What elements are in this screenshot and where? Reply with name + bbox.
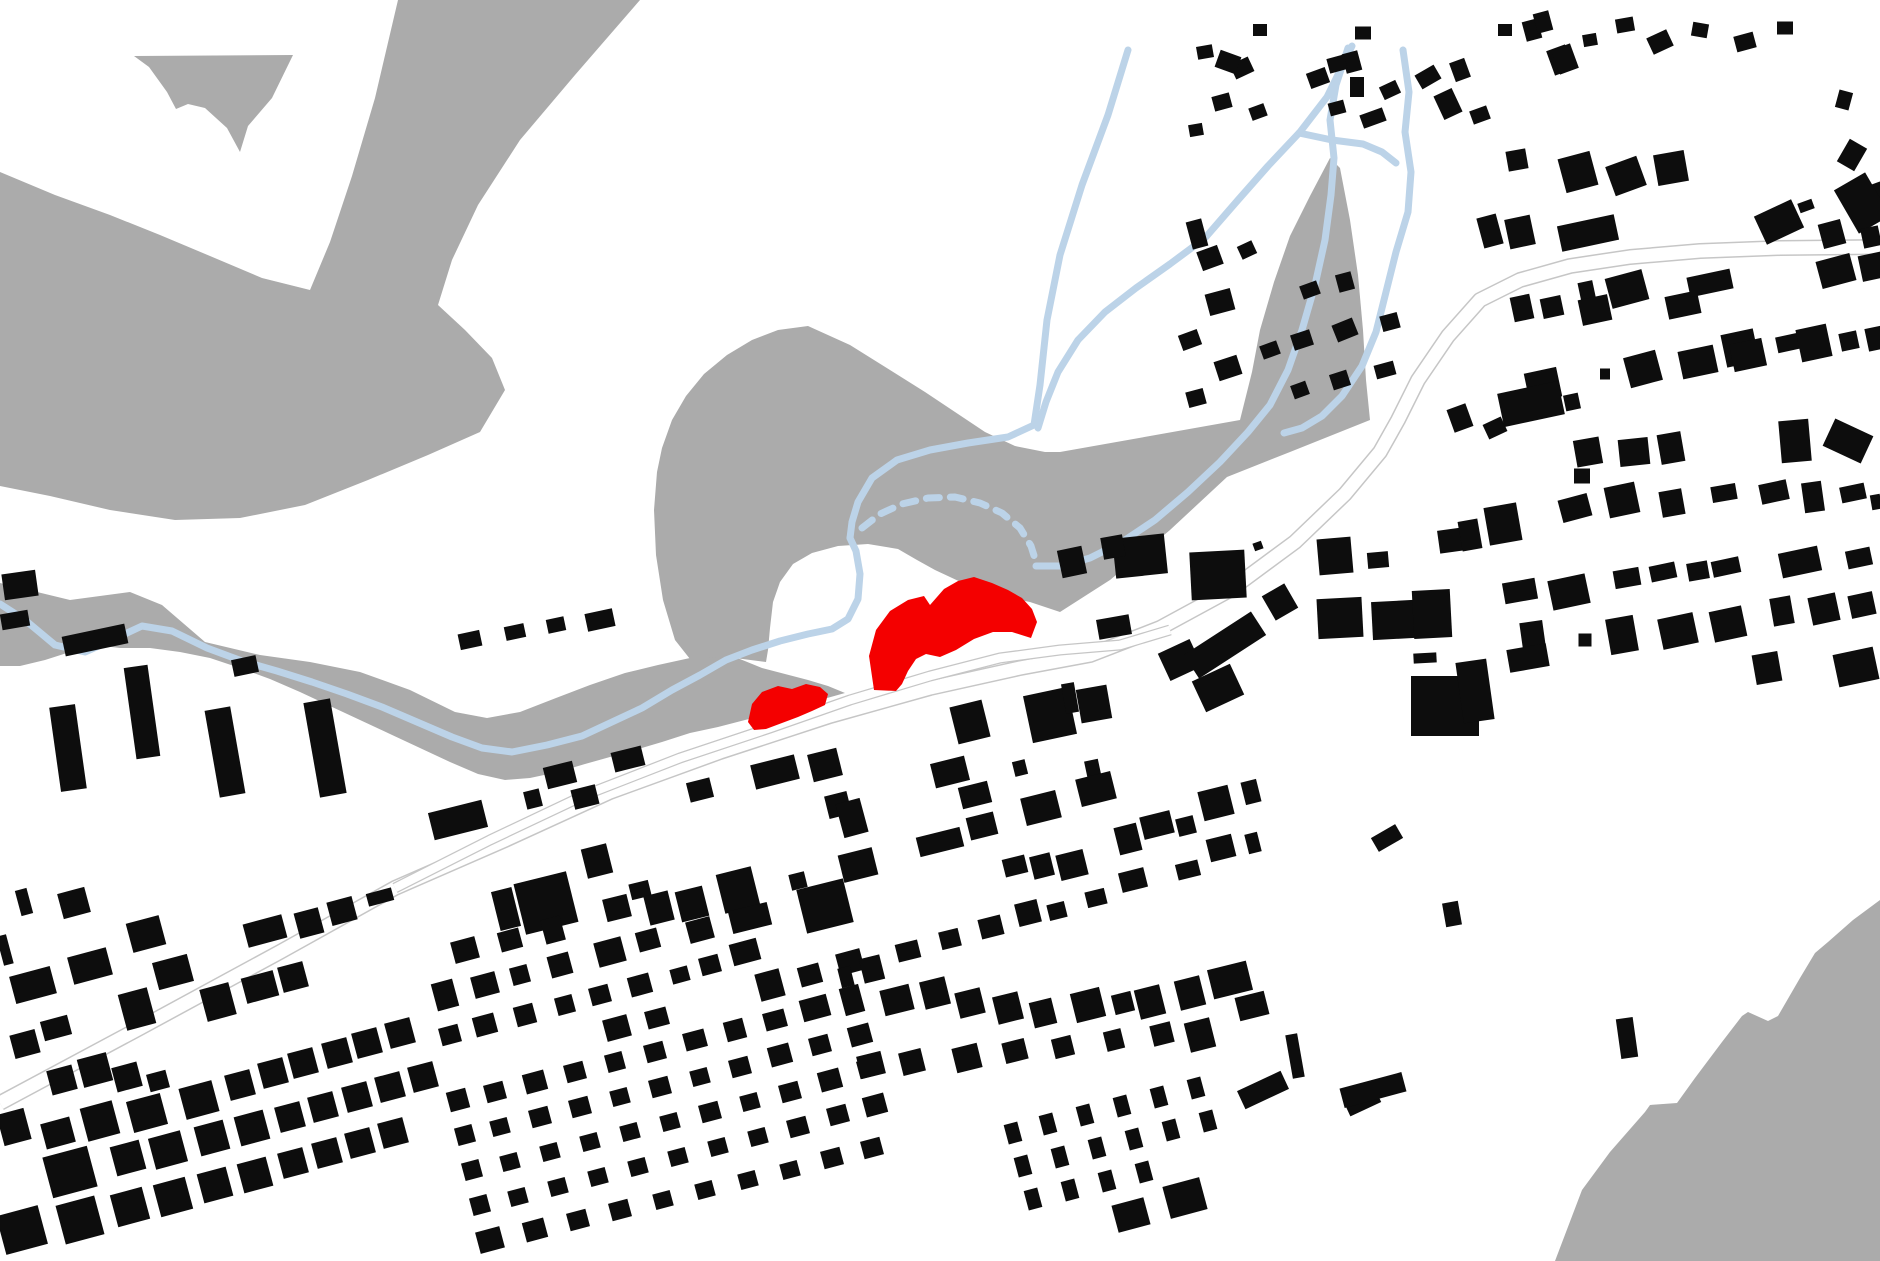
- building-footprint: [1605, 269, 1650, 309]
- building-footprint: [1359, 107, 1386, 128]
- building-footprint: [1020, 790, 1062, 826]
- building-footprint: [1604, 482, 1641, 519]
- building-footprint: [723, 1018, 747, 1042]
- building-footprint: [992, 991, 1024, 1024]
- building-footprint: [602, 894, 632, 922]
- building-footprint: [1186, 218, 1209, 249]
- building-footprint: [797, 962, 823, 987]
- building-footprint: [1769, 595, 1795, 626]
- building-footprint: [1657, 431, 1686, 465]
- building-footprint: [1613, 567, 1642, 589]
- building-footprint: [1573, 436, 1603, 467]
- building-footprint: [1185, 388, 1207, 408]
- building-footprint: [1111, 991, 1135, 1015]
- building-footprint: [303, 698, 346, 797]
- building-cluster-bottom-left: [0, 887, 439, 1255]
- building-footprint: [951, 1043, 982, 1074]
- building-footprint: [1084, 888, 1107, 908]
- building-footprint: [1055, 849, 1088, 881]
- building-footprint: [608, 1199, 632, 1222]
- building-footprint: [1646, 29, 1674, 55]
- building-footprint: [351, 1027, 383, 1059]
- building-footprint: [1711, 556, 1742, 577]
- building-footprint: [1076, 685, 1112, 724]
- building-footprint: [1211, 92, 1232, 111]
- building-footprint: [509, 964, 531, 986]
- building-footprint: [431, 979, 459, 1012]
- building-footprint: [1483, 502, 1522, 545]
- building-footprint: [1162, 1119, 1181, 1142]
- building-footprint: [321, 1037, 353, 1069]
- building-footprint: [1677, 345, 1718, 380]
- building-footprint: [80, 1100, 121, 1141]
- building-footprint: [1199, 1110, 1218, 1133]
- stream-line-stream-connector: [1299, 133, 1396, 163]
- building-footprint: [566, 1209, 590, 1232]
- building-footprint: [1244, 832, 1261, 855]
- building-footprint: [1189, 550, 1246, 601]
- building-footprint: [754, 968, 785, 1002]
- building-footprint: [539, 1142, 561, 1162]
- building-footprint: [522, 1069, 548, 1094]
- building-footprint: [1100, 534, 1125, 559]
- building-footprint: [686, 777, 714, 802]
- building-footprint: [1029, 852, 1055, 879]
- building-footprint: [1547, 573, 1590, 610]
- building-footprint: [835, 798, 868, 838]
- building-footprint: [1316, 597, 1363, 639]
- building-footprint: [1754, 199, 1804, 244]
- building-footprint: [1350, 77, 1364, 97]
- building-footprint: [1778, 419, 1812, 463]
- building-footprint: [1870, 494, 1880, 511]
- building-footprint: [1847, 591, 1876, 619]
- building-footprint: [587, 1167, 609, 1187]
- building-footprint: [1616, 1017, 1638, 1059]
- building-footprint: [808, 1034, 832, 1057]
- building-footprint: [1379, 80, 1401, 100]
- building-footprint: [1004, 1122, 1023, 1145]
- building-footprint: [1253, 24, 1267, 36]
- building-footprint: [627, 1157, 649, 1177]
- building-footprint: [707, 1137, 729, 1157]
- building-footprint: [523, 788, 543, 809]
- building-footprint: [458, 630, 483, 650]
- building-footprint: [1367, 551, 1389, 569]
- building-footprint: [958, 781, 992, 810]
- building-footprint: [489, 1117, 511, 1137]
- building-footprint: [739, 1092, 761, 1112]
- building-footprint: [1175, 815, 1197, 837]
- building-cluster-right-rows: [1455, 417, 1880, 724]
- building-footprint: [547, 1177, 569, 1197]
- building-footprint: [1412, 589, 1452, 639]
- building-footprint: [1833, 647, 1880, 688]
- building-footprint: [126, 1093, 168, 1133]
- building-footprint: [568, 1096, 592, 1119]
- building-footprint: [237, 1157, 274, 1194]
- building-footprint: [1837, 139, 1867, 172]
- building-footprint: [1777, 22, 1793, 35]
- building-footprint: [1248, 103, 1267, 121]
- building-footprint: [919, 976, 951, 1009]
- building-footprint: [604, 1051, 626, 1073]
- building-footprint: [1563, 393, 1581, 412]
- building-footprint: [1618, 437, 1651, 467]
- building-footprint: [1557, 214, 1619, 251]
- building-footprint: [1502, 578, 1538, 604]
- building-footprint: [1371, 600, 1415, 640]
- building-footprint: [1686, 560, 1710, 581]
- building-footprint: [446, 1088, 470, 1112]
- building-footprint: [1653, 150, 1689, 186]
- building-footprint: [1498, 24, 1512, 36]
- building-footprint: [563, 1061, 587, 1084]
- building-footprint: [1605, 615, 1639, 655]
- building-footprint: [669, 965, 690, 984]
- building-footprint: [898, 1048, 926, 1076]
- building-footprint: [438, 1024, 462, 1047]
- building-footprint: [450, 936, 480, 964]
- building-footprint: [1579, 634, 1592, 647]
- building-footprint: [1815, 253, 1856, 289]
- building-footprint: [428, 800, 488, 840]
- building-footprint: [859, 954, 885, 983]
- building-footprint: [593, 936, 627, 967]
- building-footprint: [1691, 22, 1709, 39]
- building-footprint: [9, 1029, 40, 1059]
- building-footprint: [588, 984, 612, 1007]
- building-footprint: [287, 1047, 319, 1079]
- building-footprint: [1285, 1033, 1304, 1078]
- building-footprint: [483, 1081, 507, 1104]
- building-footprint: [374, 1071, 406, 1103]
- building-footprint: [1098, 1170, 1117, 1193]
- building-footprint: [1710, 483, 1737, 503]
- building-footprint: [1433, 88, 1462, 120]
- building-footprint: [1449, 58, 1471, 82]
- building-footprint: [1206, 834, 1237, 863]
- building-footprint: [1, 570, 38, 600]
- building-footprint: [1178, 329, 1202, 351]
- building-footprint: [1039, 1113, 1058, 1136]
- building-footprint: [461, 1159, 483, 1181]
- building-footprint: [648, 1076, 672, 1099]
- building-footprint: [1306, 67, 1330, 89]
- building-footprint: [1845, 547, 1873, 570]
- building-footprint: [667, 1147, 689, 1167]
- building-footprint: [1558, 493, 1593, 523]
- building-footprint: [224, 1069, 256, 1101]
- building-footprint: [1414, 65, 1441, 90]
- building-footprint: [1864, 324, 1880, 351]
- building-footprint: [1197, 785, 1234, 822]
- building-footprint: [1213, 355, 1242, 381]
- building-footprint: [1252, 541, 1263, 552]
- building-footprint: [15, 888, 33, 916]
- building-footprint: [1149, 1021, 1174, 1046]
- building-footprint: [689, 1067, 711, 1087]
- building-footprint: [779, 1160, 801, 1180]
- building-footprint: [644, 1006, 670, 1029]
- building-footprint: [274, 1101, 306, 1133]
- building-footprint: [311, 1137, 343, 1169]
- building-footprint: [67, 947, 113, 984]
- building-footprint: [847, 1022, 873, 1047]
- building-footprint: [152, 954, 194, 990]
- terrain-slope-se: [1555, 900, 1880, 1261]
- building-footprint: [56, 1196, 105, 1245]
- building-footprint: [1237, 1071, 1289, 1109]
- building-footprint: [1801, 481, 1825, 513]
- building-footprint: [1113, 823, 1142, 856]
- building-footprint: [344, 1127, 376, 1159]
- building-footprint: [1657, 612, 1699, 650]
- building-footprint: [528, 1106, 552, 1129]
- building-footprint: [0, 934, 14, 966]
- building-footprint: [407, 1061, 439, 1093]
- building-footprint: [49, 704, 87, 792]
- building-footprint: [675, 886, 710, 923]
- building-footprint: [1061, 1179, 1080, 1202]
- building-footprint: [747, 1127, 769, 1147]
- building-footprint: [1582, 33, 1598, 47]
- building-footprint: [1615, 17, 1635, 34]
- terrain-hill-patch-nw: [134, 55, 293, 152]
- building-footprint: [1476, 213, 1503, 248]
- building-footprint: [547, 952, 574, 979]
- building-footprint: [609, 1087, 631, 1107]
- building-footprint: [954, 987, 986, 1019]
- building-footprint: [504, 623, 526, 641]
- building-footprint: [1111, 1197, 1150, 1233]
- building-footprint: [1623, 350, 1663, 388]
- building-footprint: [930, 756, 970, 789]
- building-footprint: [1150, 1086, 1169, 1109]
- building-footprint: [938, 928, 962, 950]
- building-footprint: [1174, 975, 1206, 1010]
- building-footprint: [0, 1108, 32, 1146]
- building-footprint: [635, 927, 661, 952]
- building-footprint: [1076, 1104, 1095, 1127]
- building-footprint: [977, 915, 1004, 940]
- building-footprint: [507, 1187, 529, 1207]
- building-footprint: [469, 1194, 491, 1216]
- building-footprint: [698, 1101, 722, 1124]
- building-footprint: [750, 754, 800, 789]
- building-footprint: [0, 1205, 48, 1255]
- building-footprint: [1505, 148, 1528, 171]
- building-footprint: [178, 1080, 219, 1120]
- building-footprint: [522, 1217, 548, 1242]
- building-footprint: [472, 1012, 498, 1037]
- building-footprint: [1510, 294, 1535, 323]
- building-footprint: [1237, 240, 1257, 259]
- building-footprint: [895, 939, 922, 962]
- terrain-valley-west: [0, 0, 640, 520]
- building-footprint: [1184, 1017, 1216, 1052]
- building-footprint: [1075, 771, 1117, 807]
- building-footprint: [1188, 123, 1204, 137]
- building-footprint: [788, 871, 807, 890]
- building-footprint: [1823, 419, 1874, 464]
- building-footprint: [234, 1110, 271, 1147]
- building-footprint: [1046, 901, 1067, 921]
- building-footprint: [1135, 1161, 1154, 1184]
- building-footprint: [1134, 984, 1166, 1019]
- building-footprint: [767, 1042, 793, 1067]
- building-footprint: [1014, 1155, 1033, 1178]
- building-footprint: [1139, 810, 1175, 840]
- building-footprint: [110, 1140, 147, 1177]
- building-footprint: [643, 1041, 667, 1064]
- building-footprint: [584, 608, 615, 631]
- building-footprint: [799, 994, 832, 1022]
- building-footprint: [1574, 469, 1590, 484]
- building-footprint: [1686, 269, 1733, 298]
- building-footprint: [1029, 998, 1058, 1029]
- building-footprint: [1778, 546, 1822, 579]
- building-footprint: [42, 1146, 97, 1198]
- building-footprint: [9, 966, 57, 1004]
- building-footprint: [1442, 901, 1462, 927]
- building-footprint: [643, 890, 675, 925]
- building-footprint: [1103, 1028, 1125, 1052]
- site-plan-map: [0, 0, 1880, 1261]
- building-footprint: [1605, 156, 1647, 196]
- building-footprint: [1469, 105, 1491, 124]
- building-footprint: [277, 1147, 309, 1179]
- building-footprint: [1240, 779, 1261, 805]
- building-footprint: [1839, 483, 1867, 504]
- building-footprint: [839, 984, 866, 1016]
- building-footprint: [257, 1057, 289, 1089]
- building-footprint: [737, 1170, 759, 1190]
- building-footprint: [1196, 44, 1214, 60]
- building-footprint: [949, 700, 990, 745]
- building-footprint: [728, 1056, 752, 1079]
- building-footprint: [1088, 1137, 1107, 1160]
- building-footprint: [124, 665, 161, 759]
- building-footprint: [153, 1177, 193, 1217]
- building-footprint: [778, 1081, 802, 1104]
- building-footprint: [879, 984, 914, 1016]
- building-footprint: [197, 1167, 234, 1204]
- building-footprint: [1504, 215, 1536, 250]
- building-footprint: [826, 1104, 850, 1127]
- building-footprint: [1001, 1038, 1028, 1064]
- building-footprint: [729, 938, 762, 966]
- building-footprint: [659, 1112, 681, 1132]
- building-footprint: [1196, 245, 1224, 271]
- building-footprint: [860, 1137, 884, 1160]
- building-footprint: [205, 706, 246, 797]
- building-footprint: [1316, 537, 1353, 576]
- building-footprint: [581, 843, 613, 878]
- building-footprint: [377, 1117, 409, 1149]
- building-footprint: [1446, 403, 1473, 432]
- building-footprint: [1807, 592, 1840, 625]
- building-footprint: [1051, 1035, 1075, 1059]
- building-footprint: [1125, 1128, 1144, 1151]
- building-footprint: [194, 1120, 231, 1157]
- building-footprint: [1835, 89, 1853, 110]
- building-footprint: [1558, 151, 1599, 193]
- building-footprint: [1187, 1077, 1206, 1100]
- building-footprint: [1371, 824, 1403, 852]
- building-footprint: [1326, 54, 1347, 73]
- building-footprint: [807, 748, 843, 782]
- building-footprint: [1506, 643, 1549, 673]
- figure-ground-map-stage: [0, 0, 1880, 1261]
- building-cluster-grid-plots: [1004, 1071, 1382, 1233]
- building-footprint: [1207, 961, 1253, 1000]
- building-footprint: [698, 954, 722, 977]
- building-footprint: [652, 1190, 674, 1210]
- building-footprint: [1649, 561, 1678, 582]
- building-footprint: [110, 1187, 150, 1227]
- building-footprint: [497, 927, 523, 952]
- building-footprint: [1797, 199, 1815, 214]
- building-footprint: [838, 847, 879, 883]
- building-footprint: [341, 1081, 373, 1113]
- building-footprint: [1600, 369, 1610, 380]
- building-footprint: [916, 827, 965, 857]
- building-footprint: [762, 1008, 788, 1031]
- building-footprint: [602, 1014, 632, 1042]
- building-footprint: [57, 887, 91, 919]
- building-footprint: [1752, 651, 1783, 685]
- building-footprint: [1205, 288, 1236, 316]
- building-footprint: [682, 1028, 708, 1051]
- building-footprint: [1113, 1095, 1132, 1118]
- building-footprint: [1070, 987, 1106, 1023]
- building-footprint: [1795, 324, 1832, 363]
- building-footprint: [966, 811, 999, 840]
- building-footprint: [307, 1091, 339, 1123]
- building-footprint: [1733, 32, 1756, 53]
- building-footprint: [546, 616, 567, 633]
- building-footprint: [111, 1062, 143, 1093]
- building-footprint: [126, 915, 167, 953]
- site-highlight-layer: [748, 577, 1037, 730]
- building-footprint: [148, 1130, 188, 1169]
- building-footprint: [627, 972, 653, 997]
- building-footprint: [820, 1147, 844, 1170]
- building-footprint: [862, 1092, 888, 1117]
- building-footprint: [1162, 1177, 1207, 1219]
- building-footprint: [277, 961, 309, 993]
- building-footprint: [1118, 867, 1148, 893]
- building-footprint: [1262, 583, 1299, 620]
- building-cluster-sparse-right: [1285, 824, 1638, 1108]
- building-footprint: [817, 1067, 843, 1092]
- building-footprint: [1758, 479, 1790, 504]
- building-footprint: [1014, 899, 1042, 927]
- building-footprint: [1709, 605, 1748, 642]
- building-footprint: [554, 994, 576, 1016]
- building-footprint: [118, 987, 157, 1031]
- building-footprint: [786, 1116, 810, 1139]
- building-footprint: [1175, 859, 1201, 880]
- building-footprint: [1235, 991, 1270, 1022]
- building-footprint: [1838, 330, 1859, 351]
- building-footprint: [454, 1124, 476, 1146]
- building-footprint: [384, 1017, 416, 1049]
- building-footprint: [1540, 295, 1565, 319]
- building-footprint: [1051, 1146, 1070, 1169]
- building-footprint: [1374, 361, 1397, 380]
